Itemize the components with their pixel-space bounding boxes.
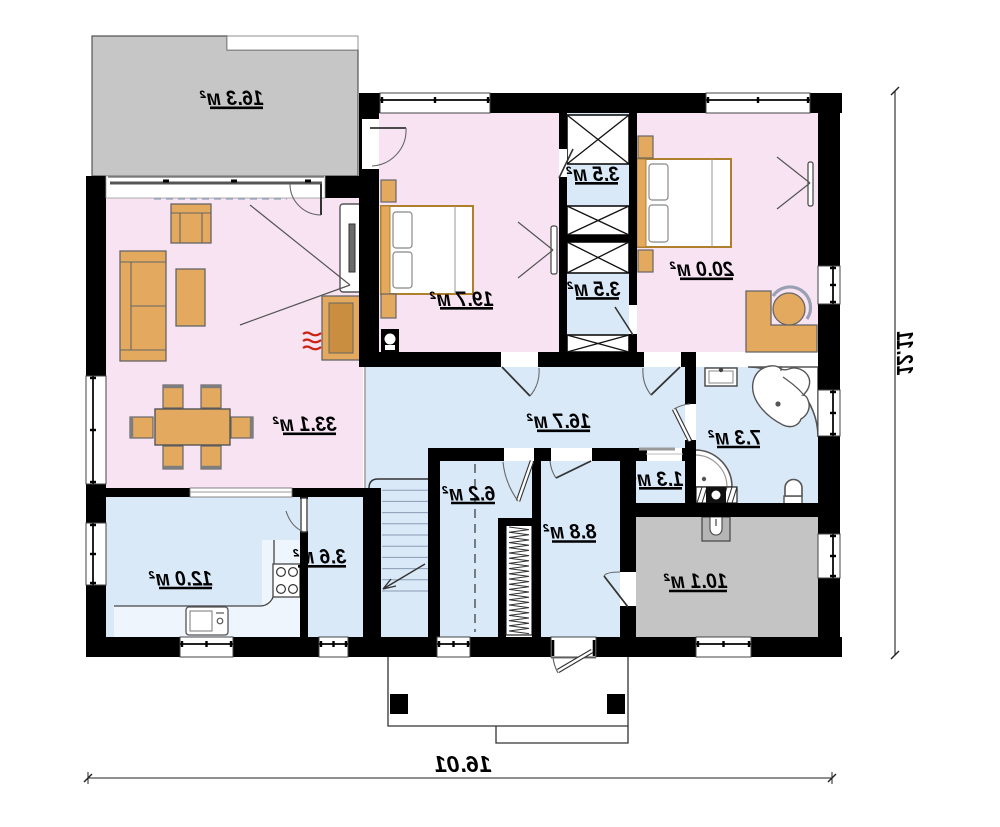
svg-text:16.01: 16.01	[434, 751, 492, 777]
svg-text:12.11: 12.11	[891, 331, 916, 376]
